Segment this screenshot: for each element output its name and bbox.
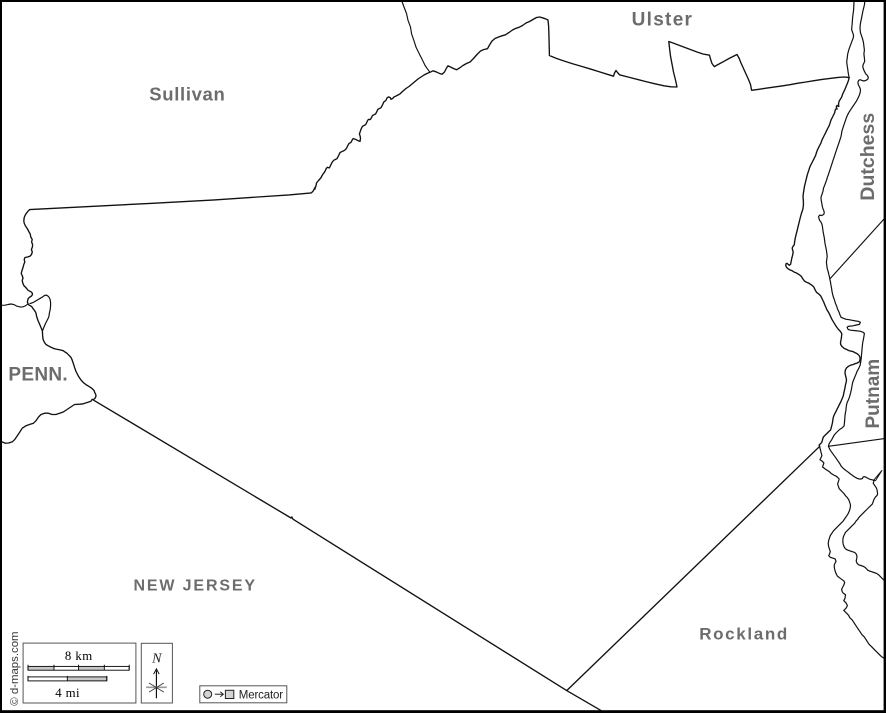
svg-text:Rockland: Rockland bbox=[699, 624, 789, 643]
svg-text:Mercator: Mercator bbox=[239, 690, 283, 702]
svg-text:N: N bbox=[151, 651, 162, 666]
svg-text:4 mi: 4 mi bbox=[55, 686, 80, 700]
svg-text:Sullivan: Sullivan bbox=[149, 84, 225, 105]
svg-text:© d-maps.com: © d-maps.com bbox=[9, 631, 21, 705]
svg-text:8 km: 8 km bbox=[65, 649, 93, 663]
svg-text:Dutchess: Dutchess bbox=[857, 113, 879, 201]
svg-text:Ulster: Ulster bbox=[632, 9, 694, 30]
svg-text:PENN.: PENN. bbox=[8, 364, 68, 385]
svg-text:Putnam: Putnam bbox=[863, 359, 884, 429]
svg-text:NEW JERSEY: NEW JERSEY bbox=[134, 577, 257, 594]
